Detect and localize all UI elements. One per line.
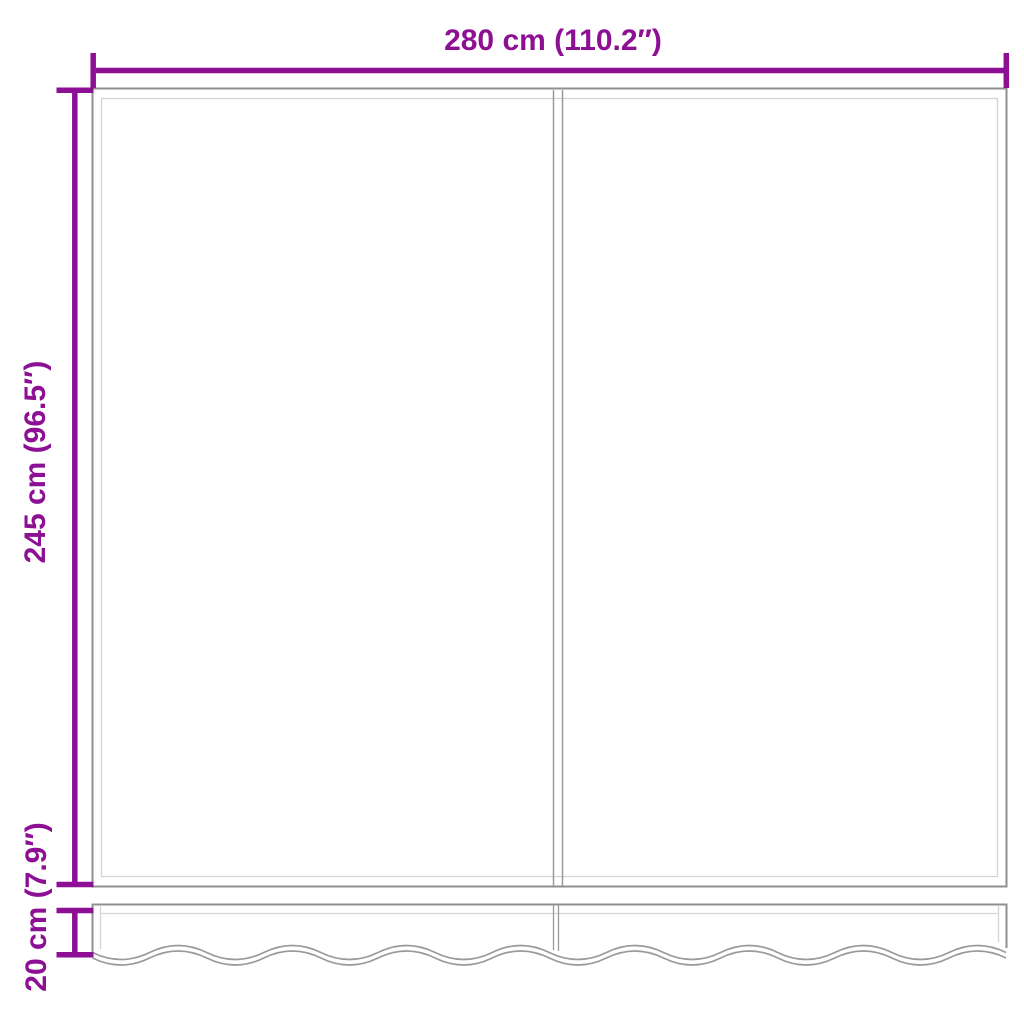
width-dimension-line [93,53,1006,88]
fabric-main-panel [93,89,1007,887]
width-dimension-label: 280 cm (110.2″) [203,24,903,58]
fabric-panel-outline [93,89,1007,887]
fabric-valance-panel [93,905,1007,966]
valance-outline [93,905,1007,958]
height-dimension-label: 245 cm (96.5″) [19,361,53,564]
height-dimension-line [57,90,94,885]
valance-center-seam [554,905,559,951]
awning-fabric-drawing [0,0,1024,1024]
valance-dimension-line [57,911,94,955]
valance-dimension-label: 20 cm (7.9″) [20,822,54,991]
product-dimension-diagram: 280 cm (110.2″) 245 cm (96.5″) 20 cm (7.… [0,0,1024,1024]
valance-scalloped-edge [93,946,1007,966]
